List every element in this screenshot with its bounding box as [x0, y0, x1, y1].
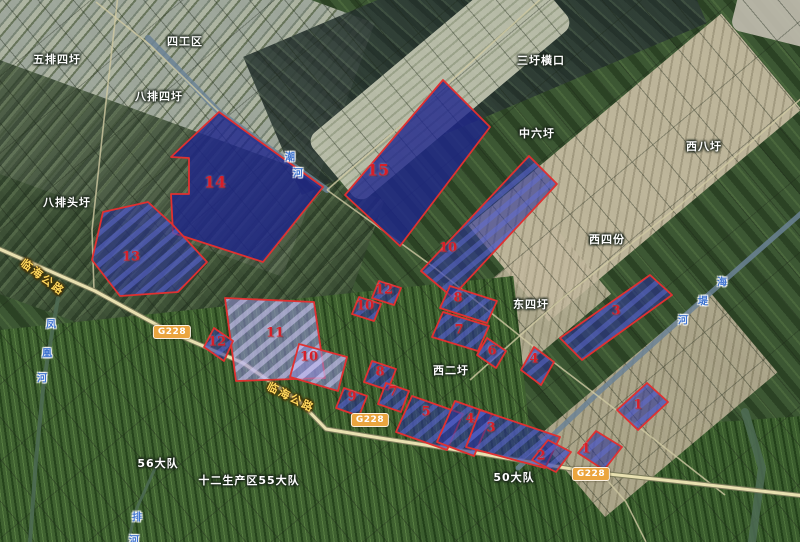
- parcel-outline-12: [372, 281, 401, 305]
- parcel-outline-4: [521, 347, 554, 385]
- road-south-branch-line: [600, 472, 646, 542]
- parcel-outline-3: [560, 275, 672, 360]
- road-right-diagonal-line: [470, 95, 800, 380]
- parcel-outline-9: [336, 388, 367, 416]
- river-fenghuang-line: [30, 298, 58, 542]
- parcels-group: [92, 80, 672, 472]
- river-canal-se-line: [745, 412, 762, 542]
- satellite-map-canvas[interactable]: 14151310311112101210876487954321五排四圩四工区八…: [0, 0, 800, 542]
- parcel-outline-10: [290, 344, 347, 391]
- river-pai-line: [128, 462, 158, 542]
- parcel-outline-1: [578, 431, 622, 470]
- parcel-outline-10: [352, 297, 381, 321]
- parcel-outline-1: [617, 383, 668, 430]
- parcel-outline-14: [171, 112, 323, 262]
- map-overlay-svg: [0, 0, 800, 542]
